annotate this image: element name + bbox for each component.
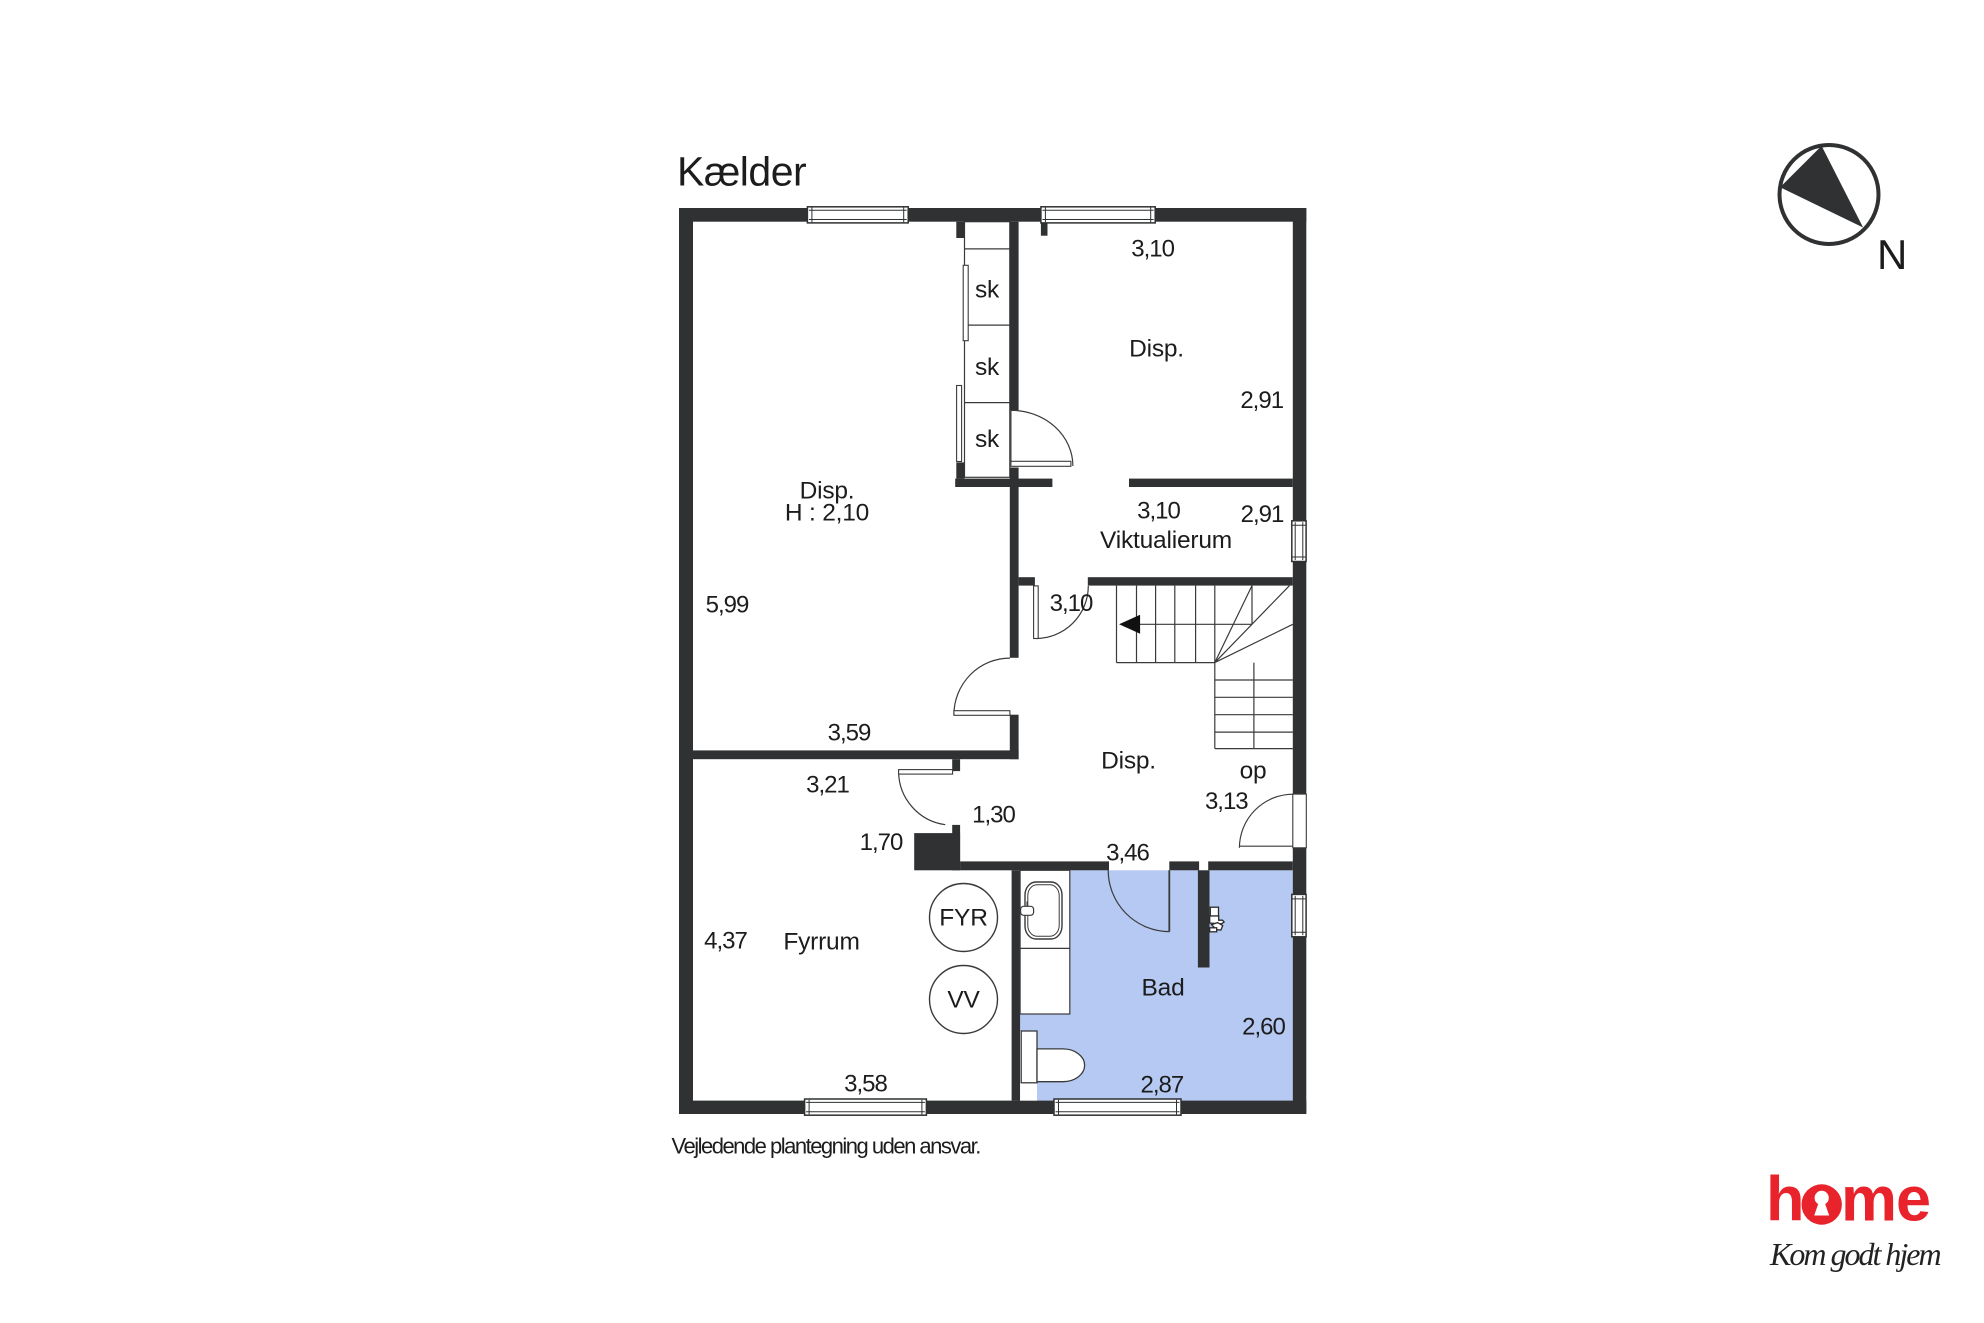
svg-text:2,87: 2,87 (1141, 1072, 1184, 1099)
svg-text:home: home (1766, 1165, 1930, 1235)
svg-text:Bad: Bad (1142, 975, 1185, 1002)
svg-text:3,10: 3,10 (1131, 236, 1174, 263)
svg-text:sk: sk (975, 277, 1000, 304)
svg-text:2,60: 2,60 (1242, 1014, 1285, 1041)
svg-text:4,37: 4,37 (704, 928, 747, 955)
svg-text:FYR: FYR (939, 905, 987, 932)
svg-text:3,10: 3,10 (1137, 498, 1180, 525)
svg-text:Disp.: Disp. (1101, 748, 1156, 775)
svg-text:Viktualierum: Viktualierum (1100, 527, 1232, 554)
svg-text:3,58: 3,58 (844, 1071, 887, 1098)
svg-text:Kælder: Kælder (677, 149, 806, 195)
svg-text:Disp.: Disp. (1129, 336, 1184, 363)
svg-text:3,46: 3,46 (1106, 840, 1149, 867)
svg-text:3,21: 3,21 (806, 772, 849, 799)
svg-text:sk: sk (975, 426, 1000, 453)
svg-text:Fyrrum: Fyrrum (783, 929, 859, 956)
svg-text:3,10: 3,10 (1050, 590, 1093, 617)
svg-text:H : 2,10: H : 2,10 (785, 500, 869, 527)
svg-text:2,91: 2,91 (1240, 387, 1283, 414)
svg-text:VV: VV (947, 987, 980, 1014)
svg-text:3,13: 3,13 (1205, 788, 1248, 815)
svg-text:N: N (1877, 231, 1907, 278)
svg-text:1,30: 1,30 (972, 802, 1015, 829)
svg-text:Vejledende plantegning uden an: Vejledende plantegning uden ansvar. (672, 1134, 981, 1159)
svg-text:op: op (1240, 758, 1267, 785)
svg-text:3,59: 3,59 (828, 720, 871, 747)
svg-text:Kom godt hjem: Kom godt hjem (1769, 1236, 1940, 1272)
svg-text:2,91: 2,91 (1241, 501, 1284, 528)
svg-text:sk: sk (975, 354, 1000, 381)
svg-text:5,99: 5,99 (706, 592, 749, 619)
svg-text:1,70: 1,70 (860, 829, 903, 856)
